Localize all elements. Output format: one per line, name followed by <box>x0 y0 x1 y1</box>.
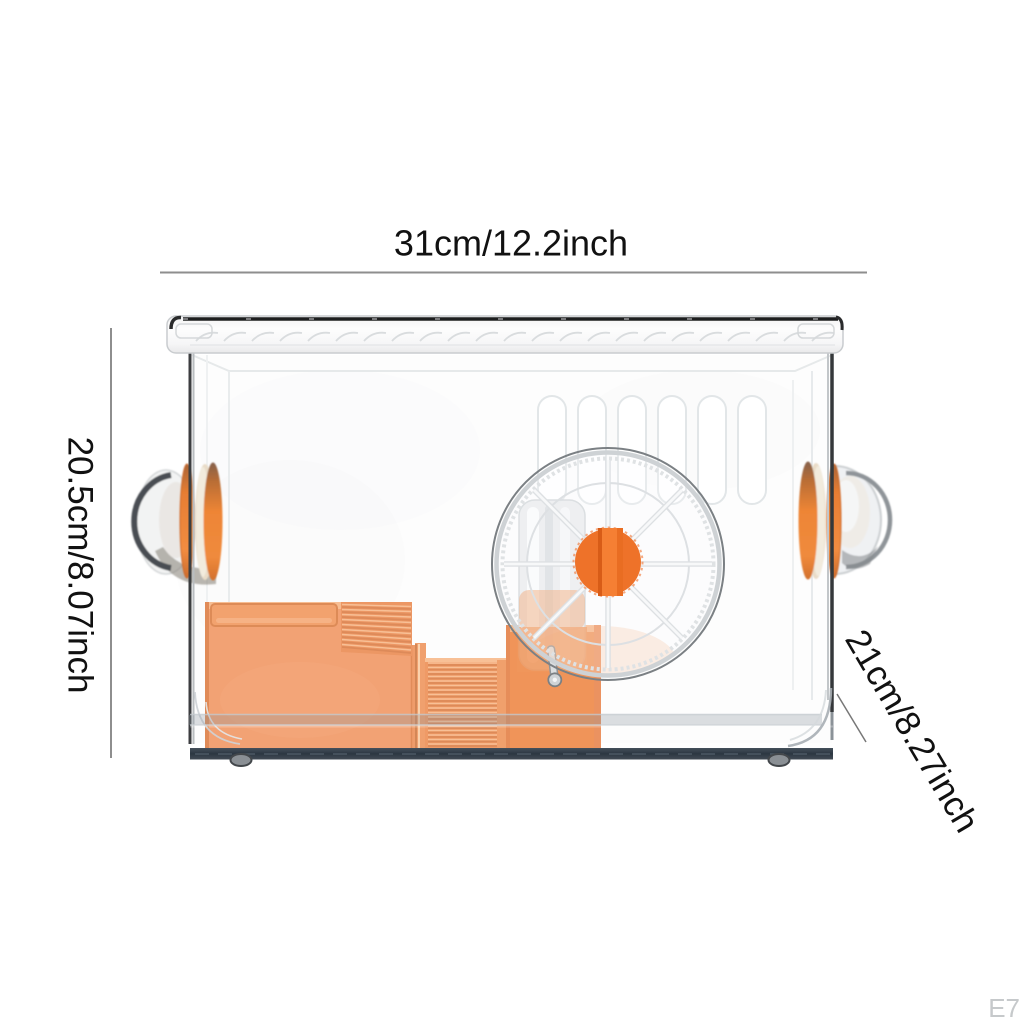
svg-text:31cm/12.2inch: 31cm/12.2inch <box>394 223 628 264</box>
svg-text:E7: E7 <box>988 993 1020 1023</box>
svg-text:20.5cm/8.07inch: 20.5cm/8.07inch <box>61 437 100 694</box>
